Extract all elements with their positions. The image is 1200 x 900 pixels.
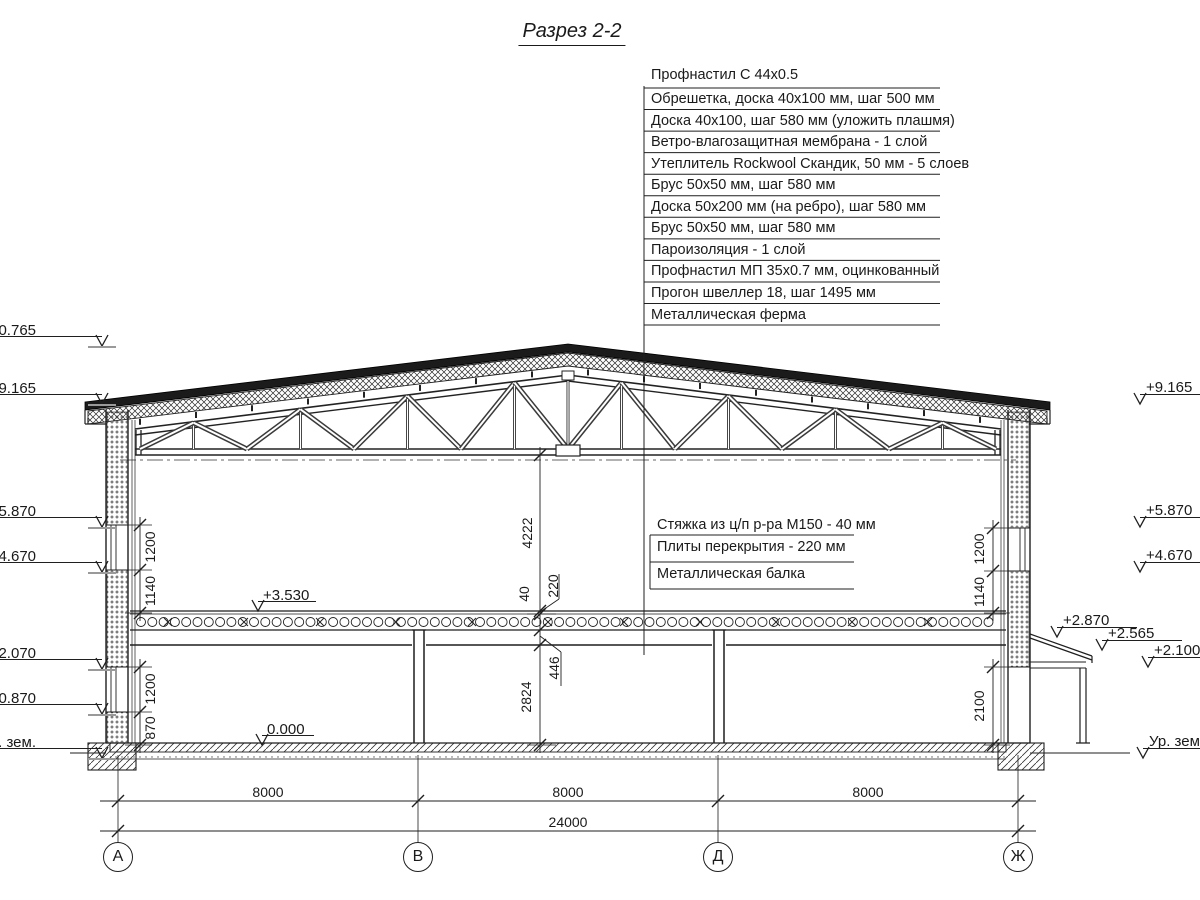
roof-callout-item: Пароизоляция - 1 слой xyxy=(651,242,806,259)
section-drawing xyxy=(0,0,1200,900)
dim-label: 4222 xyxy=(519,517,535,548)
dim-label: 1140 xyxy=(971,577,987,607)
elevation-shelf xyxy=(1140,394,1200,395)
ground-floor xyxy=(70,743,1130,770)
axis-bubble: Д xyxy=(703,842,733,872)
elevation-shelf xyxy=(1140,517,1200,518)
axis-bubble: В xyxy=(403,842,433,872)
elevation-shelf xyxy=(0,704,102,705)
floor-callout-item: Стяжка из ц/п р-ра М150 - 40 мм xyxy=(657,517,876,534)
elevation-shelf xyxy=(0,562,102,563)
dim-label: 1200 xyxy=(142,531,158,562)
elevation-level-tick xyxy=(88,404,116,406)
roof-callout-item: Профнастил МП 35х0.7 мм, оцинкованный xyxy=(651,263,939,280)
floor-slab xyxy=(130,611,1006,630)
elevation-shelf xyxy=(0,659,102,660)
elevation-shelf xyxy=(1102,640,1182,641)
elevation-shelf xyxy=(0,336,102,337)
roof-callout-item: Доска 50х200 мм (на ребро), шаг 580 мм xyxy=(651,199,926,216)
roof-callout-item: Брус 50х50 мм, шаг 580 мм xyxy=(651,220,836,237)
roof-callout-item: Брус 50х50 мм, шаг 580 мм xyxy=(651,177,836,194)
dim-label: 870 xyxy=(142,716,158,739)
lean-to xyxy=(1030,634,1092,743)
drawing-sheet: Разрез 2-2 Профнастил С 44х0.5Обрешетка,… xyxy=(0,0,1200,900)
axis-bubble: А xyxy=(103,842,133,872)
drawing-title: Разрез 2-2 xyxy=(518,20,625,46)
roof-callout-item: Утеплитель Rockwool Скандик, 50 мм - 5 с… xyxy=(651,156,969,173)
dim-label: 8000 xyxy=(552,784,583,800)
dim-label: 1200 xyxy=(142,673,158,704)
elevation-arrow-icon xyxy=(250,600,266,612)
roof-callout-item: Прогон швеллер 18, шаг 1495 мм xyxy=(651,285,876,302)
dim-label: 1200 xyxy=(971,533,987,564)
dim-label: 1140 xyxy=(142,576,158,606)
elevation-level-tick xyxy=(88,572,116,574)
elevation-arrow-icon xyxy=(254,734,270,746)
dim-label: 8000 xyxy=(252,784,283,800)
floor-callout-item: Металлическая балка xyxy=(657,566,805,583)
roof-callout-item: Профнастил С 44х0.5 xyxy=(651,67,798,84)
floor-callout-item: Плиты перекрытия - 220 мм xyxy=(657,539,846,556)
elevation-shelf xyxy=(1140,562,1200,563)
elevation-level-tick xyxy=(88,669,116,671)
elevation-shelf xyxy=(0,394,102,395)
elevation-arrow-icon xyxy=(1135,747,1151,759)
elevation-arrow-icon xyxy=(1094,639,1110,651)
roof-callout-item: Доска 40х100, шаг 580 мм (уложить плашмя… xyxy=(651,113,955,130)
elevation-arrow-icon xyxy=(1132,561,1148,573)
elevation-shelf xyxy=(0,517,102,518)
roof-callout-item: Ветро-влагозащитная мембрана - 1 слой xyxy=(651,134,927,151)
elevation-shelf xyxy=(258,601,316,602)
elevation-arrow-icon xyxy=(1049,626,1065,638)
elevation-arrow-icon xyxy=(1140,656,1156,668)
dim-label: 2100 xyxy=(971,690,987,721)
elevation-shelf xyxy=(1143,748,1200,749)
elevation-arrow-icon xyxy=(1132,516,1148,528)
axis-bubble: Ж xyxy=(1003,842,1033,872)
dim-label: 220 xyxy=(545,574,561,597)
dim-label: 24000 xyxy=(549,814,588,830)
elevation-shelf xyxy=(0,748,102,749)
dim-label: 40 xyxy=(516,586,532,602)
dim-label: 446 xyxy=(546,656,562,679)
elevation-level-tick xyxy=(88,346,116,348)
dim-label: 8000 xyxy=(852,784,883,800)
elevation-level-tick xyxy=(88,714,116,716)
beam-and-columns xyxy=(130,630,1006,743)
dim-label: 2824 xyxy=(518,681,534,712)
elevation-arrow-icon xyxy=(1132,393,1148,405)
roof-callout-item: Металлическая ферма xyxy=(651,307,806,324)
elevation-level-tick xyxy=(88,527,116,529)
elevation-level-tick xyxy=(88,758,116,760)
roof-callout-item: Обрешетка, доска 40х100 мм, шаг 500 мм xyxy=(651,91,935,108)
